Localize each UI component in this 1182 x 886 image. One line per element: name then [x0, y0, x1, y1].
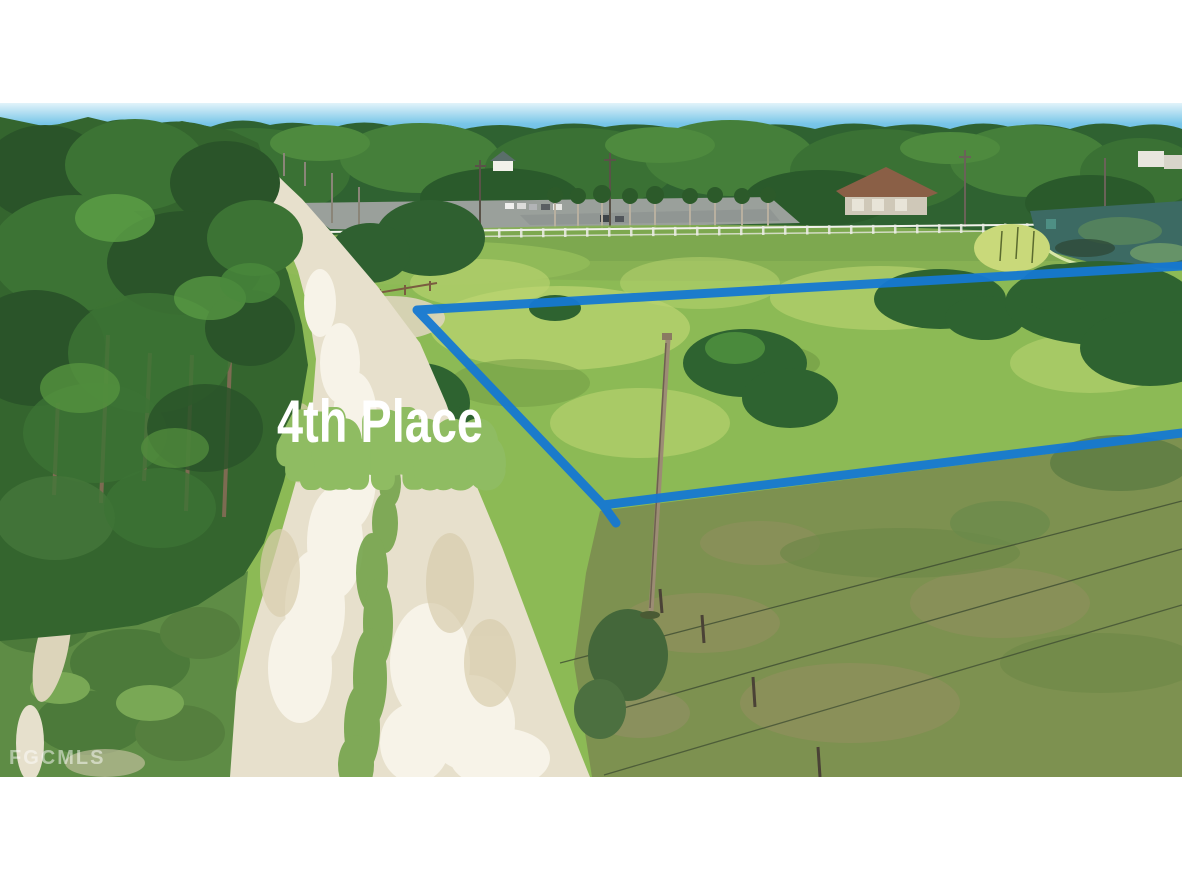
aerial-photo: 4th Place 4th Place 4th Place FGCMLS [0, 103, 1182, 777]
street-label-group: 4th Place 4th Place 4th Place [277, 388, 499, 492]
listing-photo-page: 4th Place 4th Place 4th Place FGCMLS [0, 0, 1182, 886]
street-label: 4th Place [277, 388, 483, 455]
aerial-photo-canvas: 4th Place 4th Place 4th Place FGCMLS [0, 103, 1182, 777]
mls-watermark: FGCMLS [9, 747, 105, 769]
reeds [974, 224, 1050, 272]
